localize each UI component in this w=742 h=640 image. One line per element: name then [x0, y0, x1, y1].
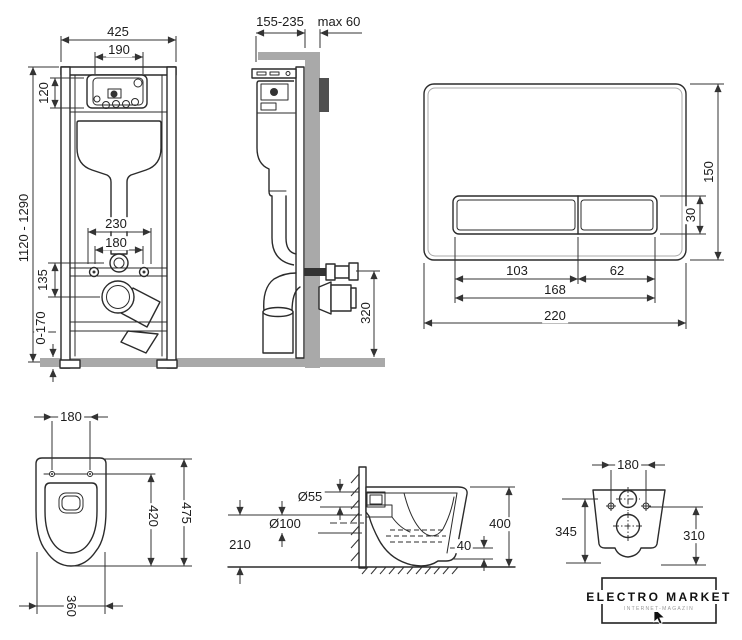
floor-slab — [40, 358, 385, 367]
wall-mount-box — [319, 78, 329, 112]
dim-bowl-depth: 475 — [179, 500, 193, 526]
dim-anchor-inner: 180 — [103, 236, 129, 250]
logo-title: ELECTRO MARKET — [582, 590, 736, 604]
frame-left-foot — [60, 360, 80, 368]
panel-valve — [111, 91, 118, 98]
dim-bowl-height: 400 — [487, 517, 513, 531]
technical-drawing-sheet: 425 190 120 1120 - 1290 230 180 135 0-17… — [0, 0, 742, 640]
fill-valve — [270, 88, 278, 96]
dim-outlet-center-height: 210 — [227, 538, 253, 552]
button-large — [457, 200, 575, 230]
bowl-back-view-drawing — [593, 487, 665, 557]
button-frame — [453, 196, 657, 234]
dim-bowl-width: 360 — [64, 593, 78, 619]
flush-plate-drawing — [424, 84, 686, 260]
dim-plate-height: 150 — [702, 159, 716, 185]
frame-right-foot — [157, 360, 177, 368]
button-small — [581, 200, 653, 230]
dim-foot-adjust: 0-170 — [34, 309, 48, 346]
logo-subtitle: INTERNET-MAGAZIN — [621, 606, 697, 612]
wall-hatching — [351, 474, 359, 561]
floor-hatching — [362, 567, 458, 574]
dim-opening-width: 190 — [106, 43, 132, 57]
mounting-wall — [359, 467, 366, 568]
toilet-back-outline — [593, 490, 665, 557]
dim-back-right-height: 310 — [681, 529, 707, 543]
drain-bend-bottom — [121, 331, 158, 353]
dim-bottom-clearance: 40 — [455, 539, 473, 553]
dim-plate-width: 220 — [542, 309, 568, 323]
dim-outlet-height: 320 — [359, 300, 373, 326]
dim-small-button-width: 62 — [608, 264, 626, 278]
dim-opening-height: 120 — [37, 80, 51, 106]
frame-back-plate — [296, 67, 304, 358]
dim-large-button-width: 103 — [504, 264, 530, 278]
dim-drain-offset: 135 — [36, 267, 50, 293]
finished-wall — [305, 60, 320, 368]
p-trap-body — [263, 312, 293, 353]
dim-bowl-inner-depth: 420 — [146, 503, 160, 529]
dim-frame-width: 425 — [105, 25, 131, 39]
dim-anchor-outer: 230 — [103, 217, 129, 231]
drain-outlet-stub — [331, 285, 351, 311]
bowl-top-view-drawing — [36, 458, 155, 566]
dim-top-hole-spacing: 180 — [58, 410, 84, 424]
ceiling-ledge — [258, 52, 320, 60]
dim-inlet-diameter: Ø55 — [296, 490, 325, 504]
dim-wall-allowance: max 60 — [316, 15, 363, 29]
frame-left-rail — [61, 67, 70, 368]
frame-right-rail — [167, 67, 176, 368]
dim-button-height: 30 — [684, 206, 698, 224]
dim-back-hole-spacing: 180 — [615, 458, 641, 472]
dim-back-left-height: 345 — [553, 525, 579, 539]
dim-buttons-width: 168 — [542, 283, 568, 297]
cistern-front — [77, 121, 161, 254]
flush-pipe-outlet — [110, 254, 128, 272]
dim-frame-height-range: 1120 - 1290 — [17, 192, 31, 264]
dim-outlet-diameter: Ø100 — [267, 517, 303, 531]
dim-frame-depth: 155-235 — [254, 15, 306, 29]
top-bracket — [252, 69, 296, 78]
threaded-rod — [304, 268, 326, 276]
